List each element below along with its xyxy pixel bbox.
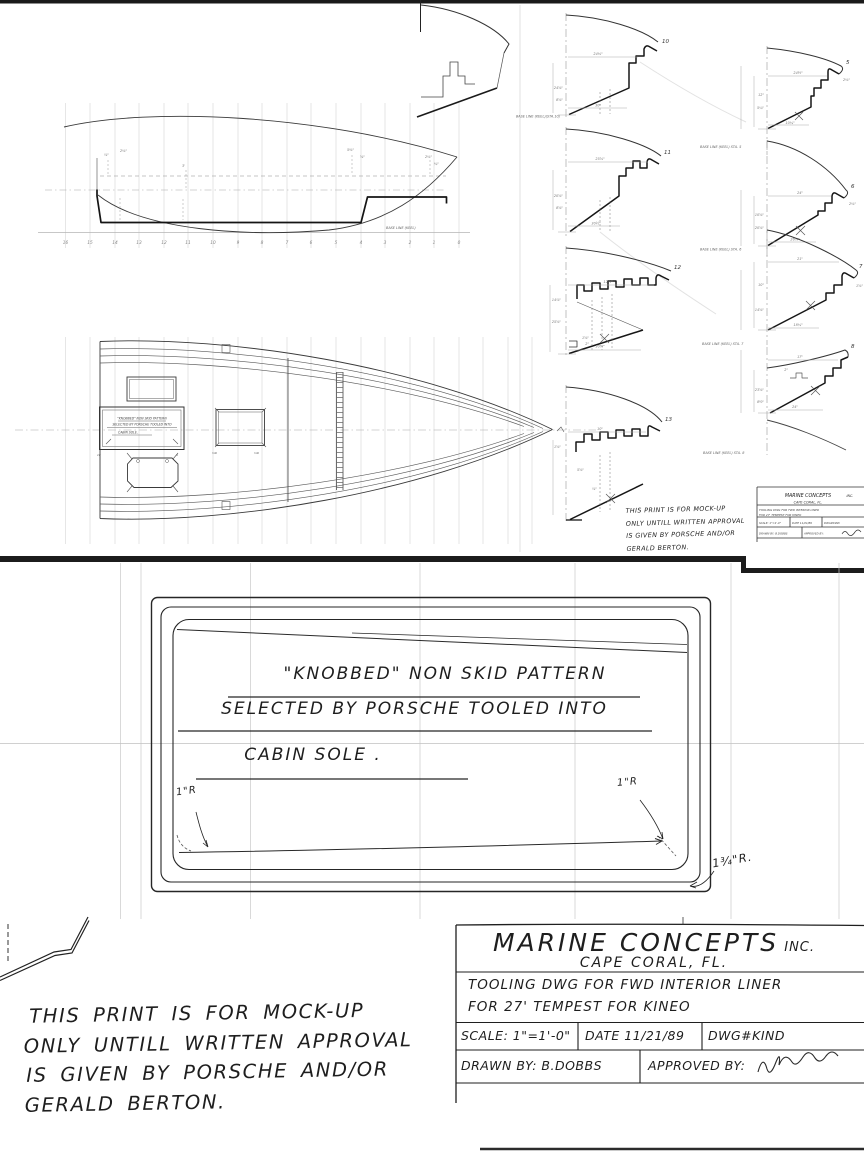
- station-number: 11: [185, 240, 191, 246]
- section-sta-5: 24½" 12" 5¼" 10¼" 2⅛" 5 BASE LINE (KEEL)…: [700, 46, 850, 158]
- mini-date: DATE 11/21/89: [792, 521, 812, 525]
- section-sta-11: 25⅝" 20⅝" 8⅝" 30½" 11: [553, 127, 671, 236]
- mockup-note-large: THIS PRINT IS FOR MOCK-UP ONLY UNTILL WR…: [23, 994, 470, 1120]
- mini-company: MARINE CONCEPTS: [785, 493, 831, 499]
- liner-profile-bold: [97, 190, 447, 223]
- dim-label: 10⅝": [755, 213, 765, 217]
- inset-hull: [421, 5, 509, 53]
- inset-side: [497, 53, 504, 88]
- station-number: 13: [136, 240, 142, 246]
- station-number: 5: [335, 240, 338, 246]
- hatch-rect-right: [216, 410, 265, 446]
- dim-label: 5⅝": [577, 468, 584, 472]
- station-number: 3: [384, 240, 387, 246]
- mini-dwg: DWG#KIND: [824, 521, 840, 525]
- dim-label: 3': [182, 164, 185, 168]
- dim-lines: [553, 432, 646, 515]
- dim-label: 5⅜": [347, 148, 354, 152]
- dim-label: 2⅛": [120, 149, 127, 153]
- hatch-rect-upper-inner: [130, 380, 174, 399]
- mockup-note-small: THIS PRINT IS FOR MOCK-UP ONLY UNTILL WR…: [625, 501, 768, 555]
- dim-label: 14⅝": [755, 308, 765, 312]
- dim-label: ¾": [434, 162, 439, 166]
- approval-signature: [758, 1052, 838, 1072]
- station-tip-number: 5: [846, 60, 850, 66]
- corner-label: ⅝R: [254, 451, 259, 455]
- fragment-hull-lines: [0, 917, 89, 981]
- section-sta-7: 21" 10" 14⅝" 18¼" 1⅝" 7 BASE LINE (KEEL)…: [702, 228, 863, 346]
- station-tip-number: 8: [851, 344, 855, 350]
- dim-label: 8⅝": [556, 206, 563, 210]
- blueprint-scan: ⅞" 2⅛" 3' 5⅜" ⅝" 2⅛" ¾" BASE LINE (KEEL)…: [0, 0, 864, 1151]
- dim-label: 24⅝": [554, 86, 564, 90]
- radius-leader-right: [640, 800, 663, 839]
- inset-liner: [421, 62, 475, 97]
- base-line-label: BASE LINE (KEEL) STA. 6: [700, 248, 741, 252]
- title-block-desc2: FOR 27' TEMPEST FOR KINEO: [468, 999, 691, 1015]
- dim-lines: [741, 350, 838, 413]
- station-number: 4: [360, 240, 363, 246]
- dim-label: ⅝": [360, 155, 365, 159]
- plan-annotation-line: CABIN SOLE.: [118, 431, 138, 435]
- dim-label: ⅞": [104, 153, 109, 157]
- title-block-drawn-by: DRAWN BY: B.DOBBS: [461, 1058, 602, 1073]
- sheer-curve: [566, 15, 658, 42]
- corner-ticks: [127, 453, 178, 492]
- title-block-dwg-number: DWG#KIND: [708, 1028, 785, 1043]
- station-number: 6: [310, 240, 313, 246]
- title-block-approved-by: APPROVED BY:: [648, 1058, 745, 1073]
- title-block-company: MARINE CONCEPTS INC.: [455, 928, 853, 957]
- base-line-label: BASE LINE (KEEL)(STA.10): [516, 115, 560, 119]
- section-sta-8: 17" 23⅝" 8½" 24" 2" 8 BASE LINE (KEEL) S…: [703, 344, 855, 455]
- dim-label: 2": [784, 368, 788, 372]
- dim-label: 2⅛": [425, 155, 432, 159]
- dim-label: 10¼": [785, 121, 795, 125]
- dim-label: 23⅝": [755, 388, 765, 392]
- keel-step: [569, 341, 577, 347]
- station-tip-number: 6: [851, 184, 855, 190]
- title-block-scale: SCALE: 1"=1'-0": [461, 1028, 571, 1043]
- station-tip-number: 13: [665, 417, 672, 423]
- corner-arrows: [106, 439, 178, 444]
- sole-rect: [100, 407, 185, 450]
- scan-smudge: [600, 62, 746, 314]
- hatch-rect-right-inner: [219, 412, 263, 443]
- liner-steps: [768, 193, 844, 246]
- sheet-top-edge: [0, 0, 864, 4]
- dim-label: 24": [792, 405, 798, 409]
- section-inset: [417, 0, 509, 117]
- seat-trapezoid: [128, 458, 179, 488]
- base-line-label: BASE LINE (KEEL) STA. 8: [703, 451, 745, 455]
- corner-label: R: [176, 453, 178, 457]
- liner-steps: [569, 46, 657, 115]
- dim-label: 10": [758, 283, 764, 287]
- station-tip-number: 7: [859, 264, 863, 270]
- liner-notch-train: [577, 275, 669, 299]
- station-number: 16: [63, 240, 69, 246]
- sheet-bottom-edge: [0, 556, 745, 562]
- dim-label: 18¼": [793, 323, 803, 327]
- dim-label: 2⅛": [849, 202, 856, 206]
- liner-steps: [570, 159, 659, 232]
- inset-deadrise: [417, 88, 497, 117]
- sole-rect-inner: [103, 410, 182, 447]
- dim-label: 8⅝": [556, 98, 563, 102]
- deck-notch: [222, 502, 230, 510]
- fastener-mark: [166, 460, 169, 463]
- panel-bottom-slope-line: [179, 839, 662, 853]
- dim-label: 17": [797, 355, 803, 359]
- notch-detail: [790, 373, 808, 378]
- dim-label: 1⅝": [554, 445, 561, 449]
- dim-label: 5¼": [757, 106, 764, 110]
- liner-link: [577, 302, 643, 330]
- title-block-location: CAPE CORAL, FL.: [455, 955, 853, 971]
- station-tip-number: 11: [664, 150, 671, 156]
- section-sta-12: 12½" 14⅞" 25⅝" 30⅝" 1⅝" 2" 12: [550, 246, 681, 355]
- mini-signature: [842, 530, 861, 536]
- liner-steps: [768, 273, 854, 330]
- sheer-curve: [566, 387, 662, 422]
- radius-leader-left: [196, 812, 208, 847]
- station-number: 2: [409, 240, 412, 246]
- top-sheet: ⅞" 2⅛" 3' 5⅜" ⅝" 2⅛" ¾" BASE LINE (KEEL)…: [0, 0, 864, 573]
- station-number: 1: [433, 240, 436, 246]
- radius-label-right: 1"R: [617, 776, 639, 789]
- title-block-desc1: TOOLING DWG FOR FWD INTERIOR LINER: [468, 977, 782, 993]
- station-number: 14: [112, 240, 118, 246]
- sheer-curve: [767, 350, 848, 368]
- panel-top-slope-line-2: [352, 633, 687, 645]
- panel-note-line3: CABIN SOLE .: [188, 745, 438, 765]
- dim-label: 20⅝": [755, 226, 765, 230]
- liner-steps: [768, 69, 839, 129]
- mini-desc1: TOOLING DWG FOR FWD INTERIOR LINER: [759, 508, 819, 512]
- section-sta-13: 10" 1⅝" 5⅝" ⅞" 13: [553, 385, 672, 522]
- dim-label: 12½": [603, 280, 613, 284]
- station-number: 8: [261, 240, 264, 246]
- base-line-label: BASE LINE (KEEL) STA. 7: [702, 342, 744, 346]
- dim-lines: [741, 262, 839, 330]
- dim-label: 24": [797, 191, 803, 195]
- lower-hull-sweep: [767, 420, 846, 450]
- dim-label: 30⅝": [595, 345, 605, 349]
- station-tip-number: 10: [662, 39, 669, 45]
- plan-annotation-line: SELECTED BY PORSCHE TOOLED INTO: [112, 423, 172, 427]
- bow-centerline-mark: [557, 427, 564, 432]
- dim-label: 24⅛": [593, 52, 603, 56]
- dim-label: 30½": [591, 222, 601, 226]
- station-number: 0: [458, 240, 461, 246]
- section-sta-6: 24" 10⅝" 20⅝" 26⅝" 2⅛" 6 BASE LINE (KEEL…: [700, 140, 856, 256]
- dim-ticks: [108, 155, 430, 220]
- hidden-lines: [600, 89, 610, 114]
- mini-title-block: MARINE CONCEPTS INC. CAPE CORAL, FL. TOO…: [757, 487, 864, 542]
- station-number: 12: [161, 240, 167, 246]
- dim-label: 10": [597, 427, 603, 431]
- mini-location: CAPE CORAL, FL.: [794, 501, 823, 505]
- station-number: 15: [87, 240, 93, 246]
- sheer-curve: [566, 129, 661, 156]
- company-suffix: INC.: [784, 940, 815, 955]
- base-line-label: BASE LINE (KEEL) STA. 5: [700, 145, 741, 149]
- dim-label: 12": [758, 93, 764, 97]
- dim-label: 25⅝": [552, 320, 562, 324]
- dim-label: 8½": [757, 400, 764, 404]
- dim-label: 30": [595, 104, 601, 108]
- corner-ticks: [215, 408, 266, 447]
- base-line-label: BASE LINE (KEEL): [386, 226, 416, 230]
- panel-note-line2: SELECTED BY PORSCHE TOOLED INTO: [172, 699, 657, 719]
- dim-lines: [741, 190, 831, 246]
- hatch-rect-upper: [127, 377, 176, 401]
- plan-view: "KNOBBED" NON SKID PATTERN SELECTED BY P…: [15, 337, 596, 544]
- dim-label: 1⅝": [856, 284, 863, 288]
- plan-annotation-line: "KNOBBED" NON SKID PATTERN: [117, 417, 167, 421]
- title-block-date: DATE 11/21/89: [585, 1028, 684, 1043]
- dim-label: 1⅝": [582, 336, 589, 340]
- company-name: MARINE CONCEPTS: [493, 928, 779, 957]
- panel-note-line1: "KNOBBED" NON SKID PATTERN: [245, 664, 645, 684]
- dim-label: 20⅝": [554, 194, 564, 198]
- dim-label: 21": [797, 257, 803, 261]
- corner-label: 1R: [97, 453, 101, 457]
- sections-right: 24½" 12" 5¼" 10¼" 2⅛" 5 BASE LINE (KEEL)…: [700, 46, 863, 455]
- dim-lines: [741, 66, 827, 129]
- dim-label: 14⅞": [552, 298, 562, 302]
- hull-bottom: [98, 157, 457, 233]
- cross-mark: [796, 226, 805, 235]
- dim-label: 25⅝": [595, 157, 605, 161]
- sheet-bottom-edge-right: [741, 568, 864, 573]
- sheer-curve: [566, 248, 671, 271]
- corner-label: ⅝R: [212, 451, 217, 455]
- hidden-lines: [592, 294, 612, 350]
- mini-approved-by: APPROVED BY:: [803, 532, 824, 536]
- corner-radius-dashed-left: [177, 835, 191, 851]
- sections-middle: 24⅛" 24⅝" 8⅝" 30" 10 BASE LINE (KEEL)(ST…: [516, 13, 682, 522]
- dim-label: 2⅛": [843, 78, 850, 82]
- profile-view: ⅞" 2⅛" 3' 5⅜" ⅝" 2⅛" ¾" BASE LINE (KEEL)…: [38, 103, 470, 248]
- sheer-curve: [767, 141, 848, 198]
- tb-top-line: [456, 924, 864, 925]
- panel-top-slope-line: [177, 630, 687, 653]
- station-tip-number: 12: [674, 265, 681, 271]
- dim-label: 2": [585, 342, 589, 346]
- station-number: 7: [286, 240, 289, 246]
- dim-label: ⅞": [592, 487, 597, 491]
- station-number: 9: [237, 240, 240, 246]
- station-number: 10: [210, 240, 216, 246]
- dim-label: 24½": [793, 71, 803, 75]
- mini-company-suffix: INC.: [847, 494, 854, 498]
- corner-radius-dashed-right: [658, 836, 676, 856]
